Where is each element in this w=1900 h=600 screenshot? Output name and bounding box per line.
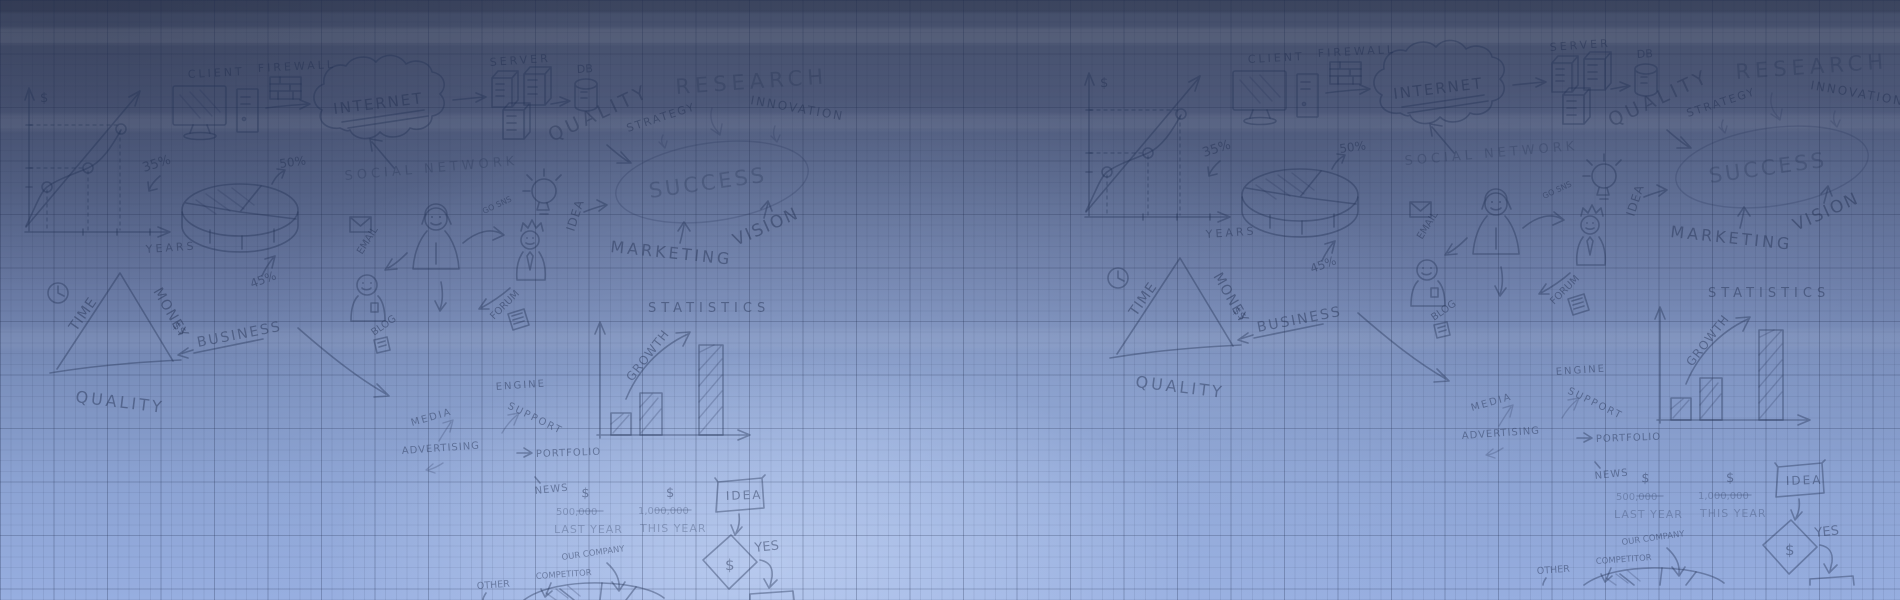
doodle-banner: $ YEARS 35% CLIENT [0, 0, 1900, 600]
doodle-background-svg: $ YEARS 35% CLIENT [0, 0, 1900, 600]
doodle-tile-right [1085, 37, 1900, 585]
doodle-tile-left [25, 52, 845, 600]
